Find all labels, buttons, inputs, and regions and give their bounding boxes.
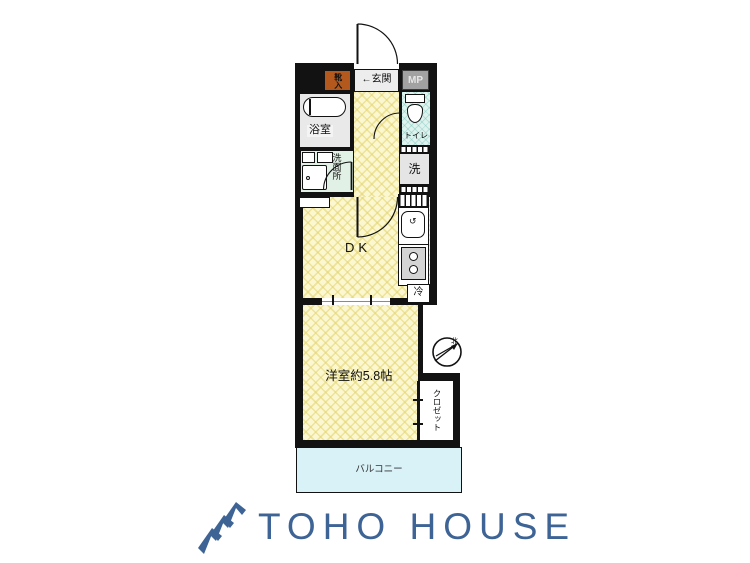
- washroom-door-arc: [324, 162, 352, 190]
- toho-house-logo-text: TOHO HOUSE: [258, 506, 576, 548]
- entrance-door-arc: [358, 24, 398, 64]
- toilet-door-arc: [374, 113, 400, 139]
- plan-overlay: 北: [0, 0, 750, 563]
- compass-north-label: 北: [451, 337, 458, 345]
- dk-door-arc: [358, 197, 398, 237]
- floorplan-image: 靴入 ←玄関 MP 浴室 トイレ 洗面所 洗 DK ↺: [0, 0, 750, 563]
- toho-house-logo-icon: [198, 496, 252, 558]
